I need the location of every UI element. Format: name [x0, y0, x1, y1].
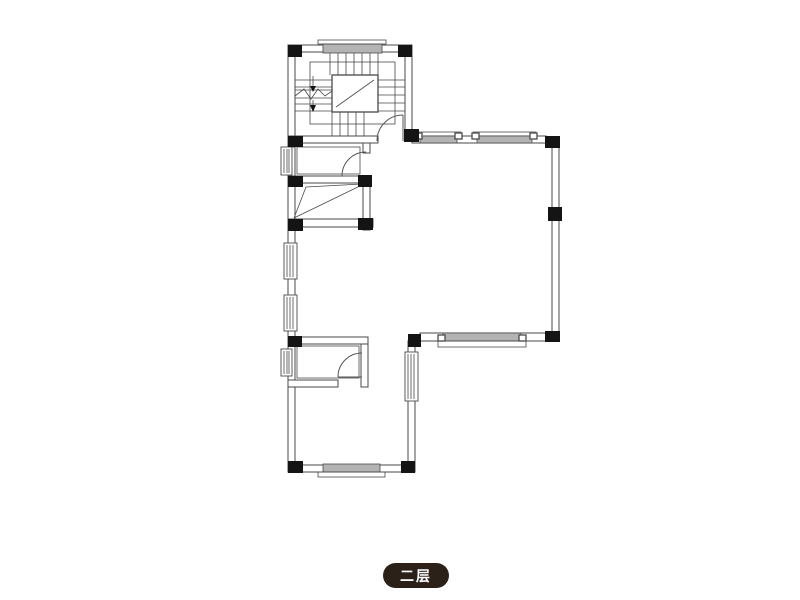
wall-bath-right: [361, 344, 368, 387]
window-bigroom-bottom: [438, 333, 526, 347]
void-diagonal-area: [294, 184, 362, 218]
column: [398, 45, 412, 57]
door-stair-to-bigroom: [377, 115, 403, 141]
window-stair-top: [318, 40, 386, 53]
column: [288, 176, 303, 187]
window-room1-left: [281, 147, 292, 175]
window-bottomroom-right: [405, 352, 418, 401]
bath-inner-outline: [297, 346, 359, 378]
column: [288, 45, 302, 57]
floor-label-text: 二层: [400, 566, 432, 586]
column: [358, 175, 372, 187]
wall-bath-bottom: [288, 380, 338, 387]
column: [408, 334, 421, 347]
column: [545, 331, 560, 342]
floor-label-badge: 二层: [383, 563, 449, 588]
column: [288, 136, 303, 147]
door-bathroom: [338, 353, 362, 377]
column: [401, 461, 415, 473]
column: [358, 218, 373, 230]
column: [545, 136, 560, 148]
window-bath-left: [281, 349, 292, 376]
wall-stair-right: [405, 45, 412, 141]
window-bottomroom-bottom: [318, 464, 385, 477]
room1-inner-outline: [297, 147, 360, 174]
walls: [288, 45, 559, 472]
stair-direction-arrow-down: [310, 100, 316, 112]
wall-room1-right-jamb: [363, 143, 370, 153]
window-living-left-2: [284, 295, 297, 331]
window-bigroom-top-2: [472, 132, 537, 143]
columns: [288, 45, 562, 473]
wall-stair-left: [288, 45, 295, 147]
column: [288, 461, 303, 473]
column: [288, 219, 303, 231]
floor-plan: [0, 0, 800, 600]
wall-bigroom-right: [552, 141, 559, 338]
column: [404, 129, 419, 142]
window-living-left-1: [284, 243, 297, 279]
door-room1: [342, 152, 366, 176]
window-bigroom-top-1: [415, 132, 462, 143]
stair-treads-top: [330, 52, 378, 75]
stair-treads-right: [378, 80, 405, 111]
stair-landing: [332, 75, 378, 112]
column: [288, 336, 302, 347]
column: [548, 207, 562, 221]
stairwell: [295, 52, 405, 136]
